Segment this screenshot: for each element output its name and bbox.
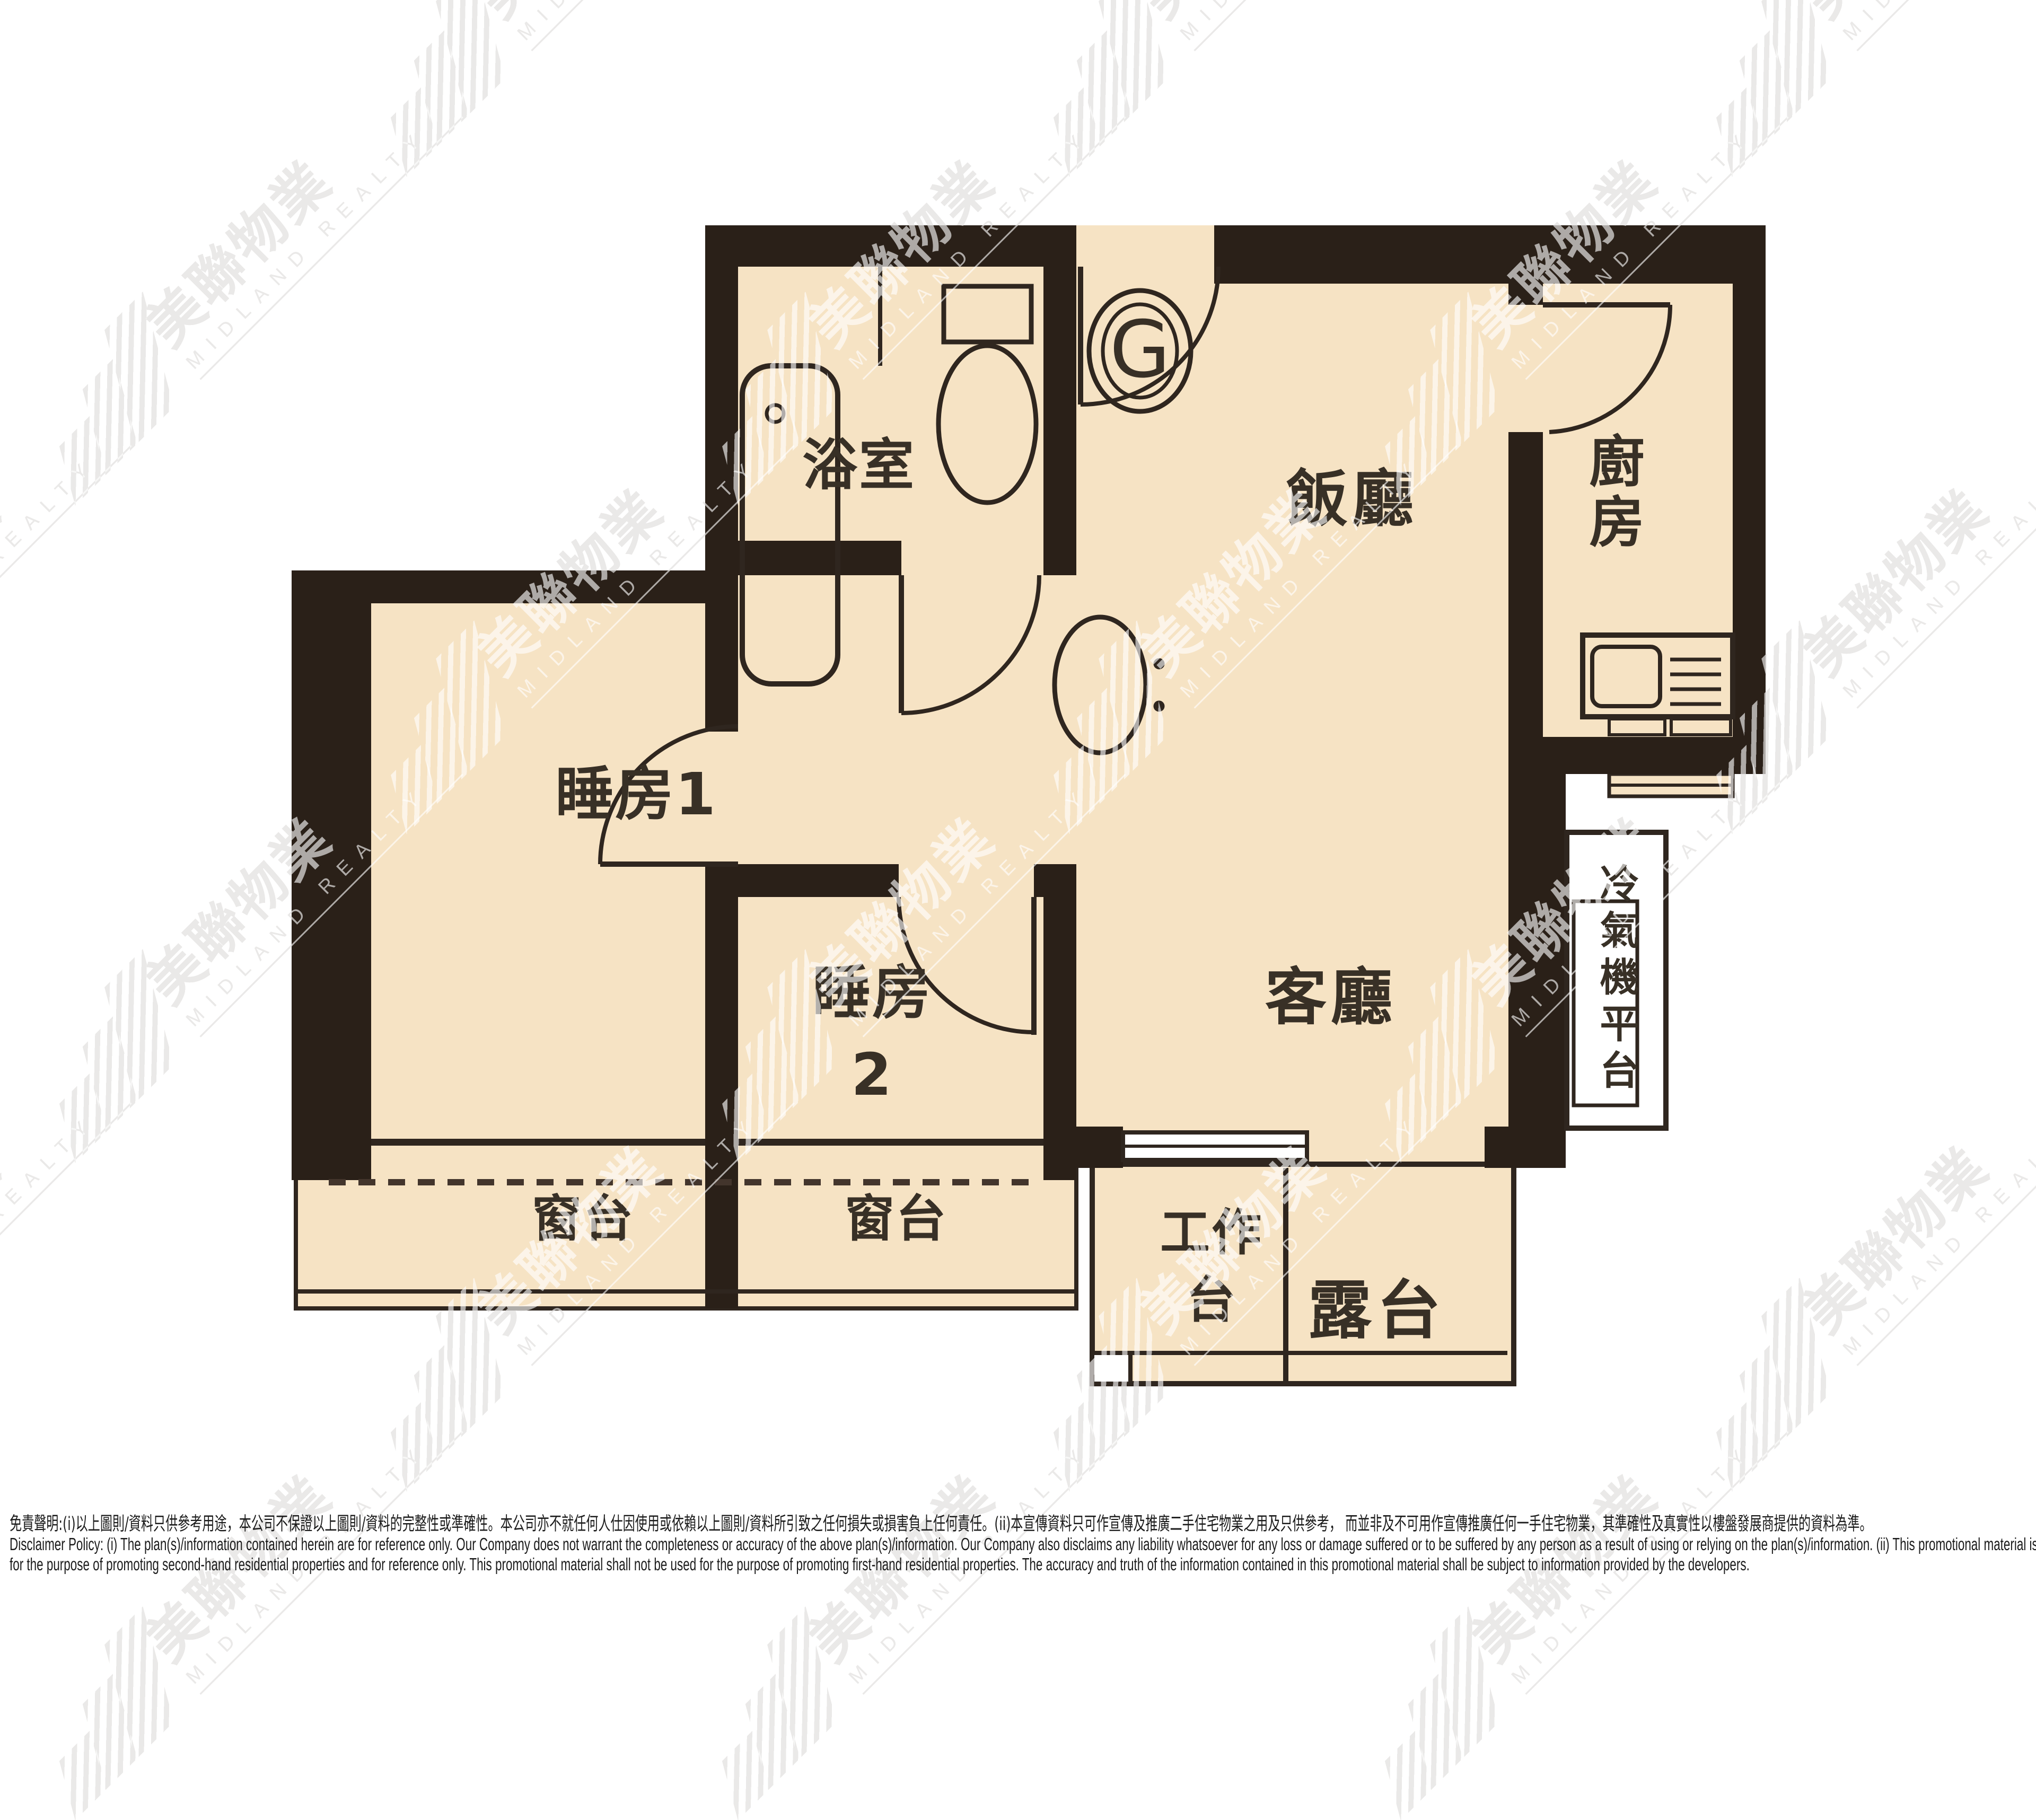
midland-logo-icon	[675, 1628, 857, 1809]
wall	[705, 225, 1076, 267]
bay-window-label-left: 窗台	[532, 1184, 635, 1254]
ac-platform-label: 冷氣機平台	[1596, 863, 1636, 1096]
tap-dot	[1154, 701, 1164, 711]
bathroom-floor	[705, 225, 1076, 575]
wall	[705, 541, 901, 575]
disclaimer-line-en2: for the purpose of promoting second-hand…	[10, 1554, 2036, 1575]
balcony-floor	[1092, 1164, 1514, 1384]
floor-plan: 浴室 飯廳 廚房 G 睡房1 睡房 2 客廳 窗台 窗台 冷氣機平台 工作 台 …	[0, 0, 2036, 1585]
corridor-floor	[738, 570, 1076, 867]
wall	[1034, 864, 1076, 897]
midland-logo-icon	[675, 1628, 857, 1809]
midland-logo-icon	[1338, 1628, 1520, 1809]
wall	[1508, 284, 1543, 305]
living-room-label: 客廳	[1265, 955, 1397, 1041]
midland-logo-icon	[13, 1628, 195, 1809]
wall	[705, 574, 738, 732]
balcony-notch	[1092, 1353, 1130, 1384]
wall	[1508, 774, 1566, 1168]
balcony-label: 露台	[1308, 1267, 1446, 1356]
tap-dot	[1154, 658, 1164, 669]
bedroom2-label: 睡房 2	[812, 952, 932, 1115]
bedroom1-label: 睡房1	[555, 753, 717, 835]
utility-platform-label: 工作 台	[1160, 1200, 1263, 1334]
wall	[1733, 225, 1766, 774]
bay-window-strip	[296, 1141, 1076, 1308]
bay-window-pier	[705, 1141, 738, 1308]
wall	[292, 570, 371, 1180]
wall	[1508, 737, 1766, 774]
floorplan-page: { "floorplan": { "unit_label": "G", "col…	[0, 0, 2036, 1585]
midland-logo-icon	[13, 1628, 195, 1809]
wall	[1043, 225, 1076, 575]
wall	[738, 864, 899, 897]
midland-logo-icon	[1338, 1628, 1520, 1809]
wall	[1485, 1127, 1566, 1168]
wall	[705, 864, 738, 1180]
kitchen-label: 廚房	[1584, 433, 1639, 553]
disclaimer: 免責聲明:(i)以上圖則/資料只供參考用途，本公司不保證以上圖則/資料的完整性或…	[10, 1514, 2036, 1575]
disclaimer-line-zh: 免責聲明:(i)以上圖則/資料只供參考用途，本公司不保證以上圖則/資料的完整性或…	[10, 1514, 1978, 1534]
disclaimer-line-en1: Disclaimer Policy: (i) The plan(s)/infor…	[10, 1534, 2036, 1554]
midland-logo-icon	[2001, 1628, 2036, 1809]
midland-logo-icon	[2001, 1628, 2036, 1809]
wall	[1214, 225, 1766, 284]
wall	[705, 267, 738, 575]
floor-plan-drawing	[0, 0, 2036, 1585]
wall	[1508, 432, 1543, 742]
unit-letter: G	[1110, 295, 1171, 405]
bathroom-label: 浴室	[802, 427, 916, 504]
dining-room-label: 飯廳	[1286, 456, 1418, 542]
wall	[1043, 897, 1076, 1180]
bay-window-label-right: 窗台	[845, 1184, 947, 1254]
